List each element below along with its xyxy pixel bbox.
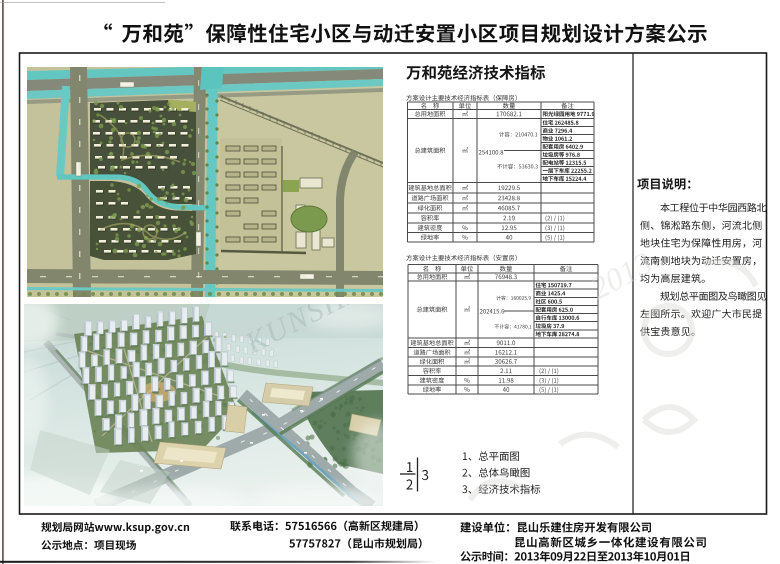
svg-text:2013: 2013 <box>584 244 657 306</box>
